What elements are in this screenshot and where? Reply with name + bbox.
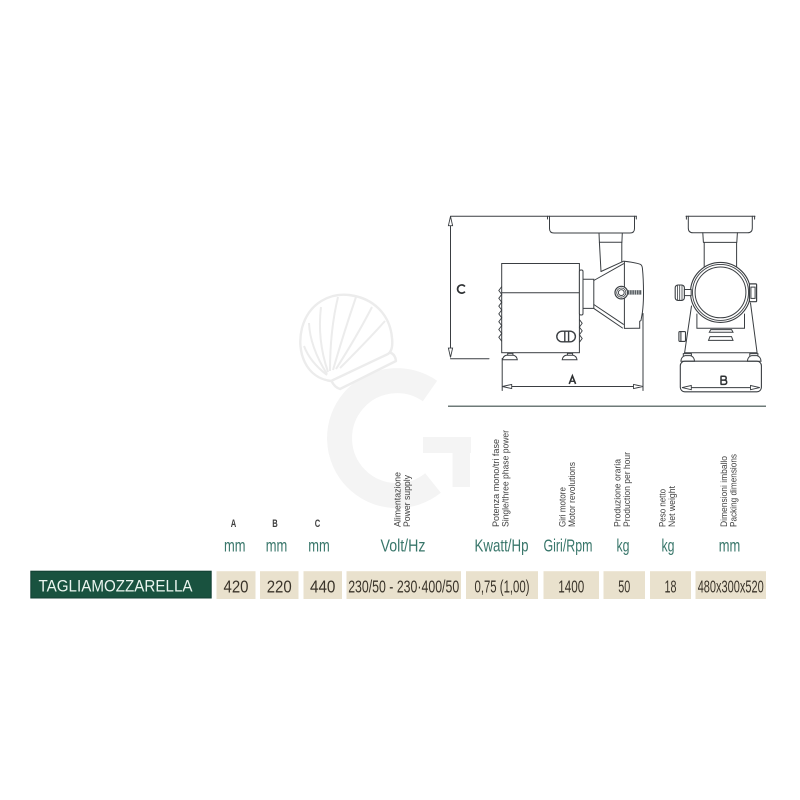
svg-text:Power supply: Power supply xyxy=(401,475,412,527)
svg-text:Packing dimensions: Packing dimensions xyxy=(727,454,738,527)
svg-text:50: 50 xyxy=(618,576,630,596)
svg-text:Volt/Hz: Volt/Hz xyxy=(381,535,426,555)
svg-text:mm: mm xyxy=(719,535,741,555)
svg-text:Single/three phase power: Single/three phase power xyxy=(499,430,510,527)
svg-text:Production per hour: Production per hour xyxy=(621,452,632,527)
svg-text:Giri/Rpm: Giri/Rpm xyxy=(544,535,593,555)
svg-text:480x300x520: 480x300x520 xyxy=(698,576,764,596)
svg-text:mm: mm xyxy=(266,535,288,555)
svg-text:kg: kg xyxy=(617,535,630,555)
svg-text:1400: 1400 xyxy=(558,576,584,596)
svg-text:230/50 - 230·400/50: 230/50 - 230·400/50 xyxy=(348,576,459,596)
svg-text:B: B xyxy=(272,518,278,530)
svg-text:A: A xyxy=(231,518,237,530)
svg-text:220: 220 xyxy=(267,576,292,596)
svg-text:C: C xyxy=(315,518,321,530)
svg-text:mm: mm xyxy=(224,535,246,555)
svg-text:Motor revolutions: Motor revolutions xyxy=(566,462,577,527)
svg-text:Net weight: Net weight xyxy=(666,486,677,527)
svg-text:18: 18 xyxy=(665,576,677,596)
svg-text:mm: mm xyxy=(308,535,330,555)
svg-text:kg: kg xyxy=(662,535,675,555)
svg-text:0,75 (1,00): 0,75 (1,00) xyxy=(475,576,530,596)
svg-text:440: 440 xyxy=(310,576,336,596)
svg-text:420: 420 xyxy=(224,576,249,596)
svg-text:TAGLIAMOZZARELLA: TAGLIAMOZZARELLA xyxy=(39,577,194,596)
svg-text:Kwatt/Hp: Kwatt/Hp xyxy=(475,535,529,555)
